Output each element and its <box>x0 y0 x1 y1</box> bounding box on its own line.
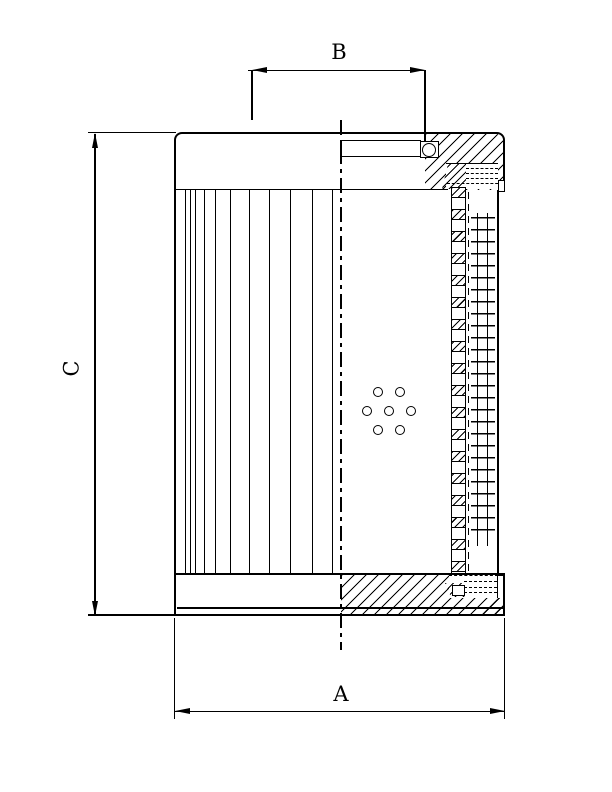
seal-dash-row <box>466 173 498 174</box>
top-bore-upper-edge <box>341 140 421 141</box>
seal-dash-row <box>464 581 497 582</box>
dim-b-arrow-left-icon <box>252 67 267 73</box>
dim-line-a <box>175 711 505 712</box>
dim-b-ext-left <box>251 70 252 120</box>
top-rim-step <box>498 180 505 192</box>
axis-centerline <box>340 120 341 650</box>
dim-b-arrow-right-icon <box>410 67 425 73</box>
seal-dash-row <box>466 168 498 169</box>
pleat-line <box>249 190 250 574</box>
dim-a-ext-left <box>174 618 175 719</box>
dim-c-arrow-up-icon <box>92 133 98 148</box>
perforation-hole <box>395 387 405 397</box>
bottom-gasket <box>464 577 497 597</box>
pleat-line <box>290 190 291 574</box>
core-tube-end <box>452 585 465 596</box>
top-bore-lower-edge <box>341 156 422 157</box>
pleat-line <box>312 190 313 574</box>
perforation-hole <box>362 406 372 416</box>
mesh-cross-wires <box>471 217 495 535</box>
pleat-line <box>204 190 205 574</box>
pleat-line <box>215 190 216 574</box>
dim-label-b: B <box>322 42 356 63</box>
pleat-line <box>230 190 231 574</box>
dim-c-ext-bottom <box>88 614 176 615</box>
pleat-line <box>190 190 191 574</box>
pleat-line <box>332 190 333 574</box>
pleat-lines <box>174 190 341 574</box>
dim-label-a: A <box>324 684 358 705</box>
dim-c-ext-top <box>88 132 176 133</box>
perforation-hole <box>406 406 416 416</box>
perforation-hole <box>395 425 405 435</box>
pleat-line <box>269 190 270 574</box>
core-tube-perforated <box>451 187 466 575</box>
core-tube-centerline <box>468 192 469 574</box>
dim-line-c <box>94 134 95 615</box>
dim-line-b <box>248 70 425 71</box>
perforation-hole <box>384 406 394 416</box>
top-gasket-boundary <box>447 183 503 184</box>
dim-a-ext-right <box>504 618 505 719</box>
oring-seal-icon <box>422 143 436 157</box>
pleat-line <box>185 190 186 574</box>
seal-dash-row <box>464 592 497 593</box>
pleat-line <box>195 190 196 574</box>
seal-dash-row <box>464 587 497 588</box>
dim-a-arrow-left-icon <box>175 708 190 714</box>
dim-label-c: C <box>62 353 83 385</box>
drawing-canvas: B C A <box>0 0 612 792</box>
seal-dash-row <box>466 178 498 179</box>
outer-shell-edge <box>497 190 499 573</box>
perforation-hole <box>373 425 383 435</box>
top-gasket <box>466 164 498 183</box>
perforation-hole <box>373 387 383 397</box>
bottom-rim-step <box>497 575 504 598</box>
